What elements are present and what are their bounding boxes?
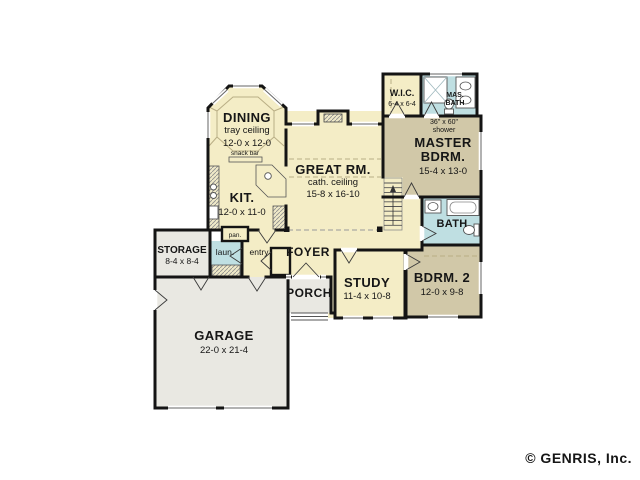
label-storage-dims: 8-4 x 8-4 [165, 256, 199, 266]
label-dining-name: DINING [223, 110, 271, 125]
label-study-dims: 11-4 x 10-8 [343, 291, 390, 302]
fireplace [324, 114, 342, 122]
kitchen-counter [208, 166, 219, 229]
label-laundry: laun. [216, 247, 234, 257]
label-master-line2: BDRM. [421, 149, 466, 164]
label-shower-note-line2: shower [433, 127, 456, 134]
master-bath-shower [424, 77, 447, 103]
label-bath: BATH [437, 218, 468, 230]
label-foyer: FOYER [286, 245, 330, 259]
label-great-room-ceiling: cath. ceiling [308, 177, 358, 188]
floor-plan-page: DINING tray ceiling 12-0 x 12-0 snack ba… [0, 0, 640, 480]
bath-tub [447, 200, 479, 216]
label-dining-ceiling: tray ceiling [224, 125, 269, 136]
label-garage-dims: 22-0 x 21-4 [200, 345, 248, 356]
label-dining-dims: 12-0 x 12-0 [223, 138, 271, 149]
porch-steps [291, 313, 328, 320]
label-great-room-name: GREAT RM. [295, 162, 371, 177]
snack-bar-counter [229, 157, 262, 162]
label-mas-bath-line1: MAS. [446, 92, 464, 99]
label-wic-name: W.I.C. [390, 88, 415, 98]
label-garage-name: GARAGE [194, 328, 253, 343]
label-entry: entry [250, 247, 270, 257]
label-mas-bath-line2: BATH [446, 100, 465, 107]
front-door-gap [292, 275, 320, 280]
label-bdrm2-dims: 12-0 x 9-8 [421, 287, 464, 298]
garage-side-door-gap [153, 290, 158, 310]
label-wic-dims: 6-4 x 6-4 [388, 101, 416, 108]
label-kitchen-dims: 12-0 x 11-0 [218, 207, 265, 218]
bath-vanity [425, 200, 441, 213]
label-pantry: pan. [229, 232, 242, 239]
opening-column-right [377, 227, 383, 233]
floor-plan-svg: DINING tray ceiling 12-0 x 12-0 snack ba… [0, 0, 640, 480]
label-kitchen-name: KIT. [230, 190, 255, 205]
washer-dryer [212, 265, 240, 276]
label-study-name: STUDY [344, 275, 390, 290]
label-great-room-dims: 15-8 x 16-10 [306, 189, 359, 200]
copyright-text: © GENRIS, Inc. [525, 450, 632, 466]
label-shower-note-line1: 36" x 60" [430, 119, 458, 126]
label-storage-name: STORAGE [157, 245, 207, 256]
label-master-dims: 15-4 x 13-0 [419, 166, 467, 177]
kitchen-appliance [273, 206, 286, 229]
label-bdrm2-name: BDRM. 2 [414, 270, 470, 285]
label-porch: PORCH [286, 286, 332, 300]
label-master-line1: MASTER [414, 135, 471, 150]
label-snack-bar: snack bar [231, 150, 260, 157]
hall-east-floor [335, 230, 422, 250]
staircase [384, 178, 402, 230]
